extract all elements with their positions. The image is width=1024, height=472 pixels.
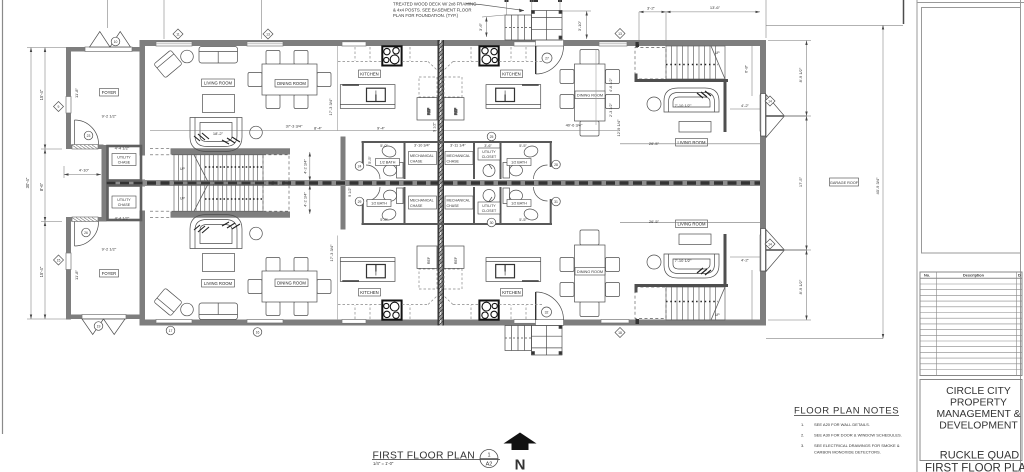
- svg-text:15'-4": 15'-4": [39, 266, 44, 277]
- svg-text:16: 16: [256, 331, 260, 335]
- svg-text:24: 24: [358, 165, 362, 169]
- svg-text:N: N: [515, 457, 526, 472]
- svg-text:1/2 BATH: 1/2 BATH: [371, 202, 387, 206]
- svg-text:CARBON MONOXIDE DETECTORS.: CARBON MONOXIDE DETECTORS.: [814, 449, 881, 454]
- svg-text:LIVING ROOM: LIVING ROOM: [204, 81, 232, 86]
- svg-text:REF: REF: [427, 107, 431, 115]
- svg-text:CHASE: CHASE: [118, 161, 131, 165]
- svg-text:5'-0": 5'-0": [380, 144, 388, 148]
- svg-text:REF: REF: [454, 107, 458, 115]
- svg-text:5'-5": 5'-5": [368, 156, 372, 164]
- svg-text:CHASE: CHASE: [118, 203, 131, 207]
- svg-text:17: 17: [169, 329, 173, 333]
- svg-text:UP: UP: [715, 313, 720, 317]
- svg-text:6'-8": 6'-8": [744, 64, 749, 73]
- svg-text:5'-5": 5'-5": [519, 144, 527, 148]
- svg-text:MANAGEMENT &: MANAGEMENT &: [936, 409, 1020, 420]
- svg-text:18'-2": 18'-2": [213, 131, 224, 136]
- svg-text:4'-4 1/2": 4'-4 1/2": [115, 216, 130, 221]
- svg-text:9'-2 1/2": 9'-2 1/2": [102, 114, 117, 119]
- svg-text:MECHANICAL: MECHANICAL: [410, 154, 434, 158]
- svg-text:3'-10 3/4": 3'-10 3/4": [414, 143, 431, 147]
- svg-text:CLOSET: CLOSET: [482, 155, 497, 159]
- svg-text:17'-5": 17'-5": [798, 176, 803, 187]
- svg-text:RUCKLE QUAD: RUCKLE QUAD: [940, 449, 1020, 461]
- svg-text:5'-0": 5'-0": [380, 218, 388, 222]
- svg-text:14: 14: [768, 243, 772, 247]
- svg-text:KITCHEN: KITCHEN: [360, 72, 378, 77]
- svg-text:11'-8": 11'-8": [74, 269, 79, 279]
- svg-text:SEE A20 FOR WALL DETAILS.: SEE A20 FOR WALL DETAILS.: [814, 422, 870, 427]
- svg-text:PLAN FOR FOUNDATION. (TYP.): PLAN FOR FOUNDATION. (TYP.): [393, 13, 459, 18]
- svg-text:CHASE: CHASE: [447, 160, 460, 164]
- svg-text:FOYER: FOYER: [102, 90, 116, 95]
- svg-text:8'-9 1/2": 8'-9 1/2": [798, 279, 803, 294]
- svg-text:FIRST FLOOR PLAN: FIRST FLOOR PLAN: [925, 463, 1024, 472]
- svg-text:7'-10 1/2": 7'-10 1/2": [675, 258, 692, 263]
- svg-text:PROPERTY: PROPERTY: [950, 398, 1007, 409]
- svg-text:26: 26: [84, 231, 88, 235]
- svg-text:30'-4": 30'-4": [25, 177, 30, 188]
- svg-text:MECHANICAL: MECHANICAL: [447, 199, 471, 203]
- svg-text:UP: UP: [180, 197, 186, 201]
- svg-text:32: 32: [545, 311, 549, 315]
- svg-text:CHASE: CHASE: [410, 204, 423, 208]
- svg-text:2'-3 1/2": 2'-3 1/2": [609, 102, 613, 117]
- svg-text:4'-2 1/4": 4'-2 1/4": [303, 159, 308, 174]
- svg-text:25: 25: [490, 135, 494, 139]
- svg-text:4'-6 1/2": 4'-6 1/2": [609, 77, 613, 92]
- svg-text:UTILITY: UTILITY: [482, 150, 496, 154]
- svg-text:40'-6 3/4": 40'-6 3/4": [566, 123, 583, 128]
- svg-text:8'-9 1/2": 8'-9 1/2": [798, 67, 803, 82]
- svg-text:7'-10 1/2": 7'-10 1/2": [675, 103, 692, 108]
- svg-text:23: 23: [87, 134, 91, 138]
- svg-text:UTILITY: UTILITY: [117, 156, 131, 160]
- svg-text:DEVELOPMENT: DEVELOPMENT: [939, 421, 1018, 432]
- svg-text:KITCHEN: KITCHEN: [360, 290, 378, 295]
- svg-text:13: 13: [618, 32, 622, 36]
- svg-text:& 4x4 POSTS. SEE BASEMENT FLOO: & 4x4 POSTS. SEE BASEMENT FLOOR: [393, 7, 471, 12]
- svg-text:Description: Description: [963, 274, 985, 278]
- svg-text:CHASE: CHASE: [410, 160, 423, 164]
- svg-text:11: 11: [176, 33, 180, 37]
- svg-text:KITCHEN: KITCHEN: [502, 72, 520, 77]
- svg-text:4'-4 1/2": 4'-4 1/2": [115, 146, 130, 151]
- svg-text:9 1/2": 9 1/2": [348, 186, 352, 196]
- svg-text:9'-4": 9'-4": [377, 126, 386, 131]
- svg-text:13'-6": 13'-6": [710, 5, 721, 10]
- svg-text:GARAGE ROOF: GARAGE ROOF: [830, 181, 859, 185]
- svg-text:37'-3 3/4": 37'-3 3/4": [286, 124, 303, 129]
- svg-text:12'-9 1/4": 12'-9 1/4": [616, 119, 621, 136]
- svg-text:3'-10": 3'-10": [577, 20, 582, 31]
- svg-text:1.: 1.: [801, 422, 804, 427]
- svg-text:No.: No.: [924, 274, 930, 278]
- svg-text:SEE ELECTRICAL DRAWINGS FOR SM: SEE ELECTRICAL DRAWINGS FOR SMOKE &: [814, 443, 900, 448]
- svg-text:4'-10": 4'-10": [79, 168, 90, 173]
- svg-text:1: 1: [487, 453, 490, 459]
- svg-text:UTILITY: UTILITY: [482, 204, 496, 208]
- svg-text:4'-2 1/4": 4'-2 1/4": [303, 192, 308, 207]
- svg-text:TREATED WOOD DECK W/ 2x8 FRAMI: TREATED WOOD DECK W/ 2x8 FRAMING: [393, 2, 477, 7]
- svg-text:30: 30: [490, 221, 494, 225]
- svg-text:14: 14: [768, 100, 772, 104]
- svg-text:LIVING ROOM: LIVING ROOM: [204, 281, 232, 286]
- svg-text:13: 13: [266, 33, 270, 37]
- svg-text:DINING ROOM: DINING ROOM: [577, 94, 603, 98]
- svg-text:15'-4": 15'-4": [39, 89, 44, 100]
- svg-text:3'-6": 3'-6": [484, 144, 492, 148]
- svg-text:CHASE: CHASE: [447, 204, 460, 208]
- svg-text:3'-11 1/4": 3'-11 1/4": [450, 143, 466, 147]
- svg-text:10: 10: [114, 40, 118, 44]
- svg-text:LIVING ROOM: LIVING ROOM: [678, 140, 706, 145]
- svg-text:SEE A30 FOR DOOR & WINDOW SCHE: SEE A30 FOR DOOR & WINDOW SCHEDULES.: [814, 433, 902, 438]
- svg-text:1/2 BATH: 1/2 BATH: [511, 202, 527, 206]
- svg-text:11'-8": 11'-8": [74, 87, 79, 97]
- svg-text:17'-3 3/4": 17'-3 3/4": [329, 244, 334, 261]
- svg-text:31: 31: [554, 200, 558, 204]
- svg-text:2.: 2.: [801, 433, 804, 438]
- svg-text:CIRCLE CITY: CIRCLE CITY: [946, 386, 1011, 397]
- svg-text:5'-5": 5'-5": [519, 218, 527, 222]
- svg-text:1/4" = 1'-0": 1/4" = 1'-0": [373, 461, 394, 466]
- svg-text:1/2 BATH: 1/2 BATH: [511, 161, 527, 165]
- svg-text:CLOSET: CLOSET: [482, 209, 497, 213]
- svg-text:D: D: [1018, 274, 1021, 278]
- svg-text:8'-4": 8'-4": [314, 125, 323, 130]
- svg-text:3.: 3.: [801, 443, 804, 448]
- svg-text:DINING ROOM: DINING ROOM: [277, 281, 306, 286]
- svg-text:29: 29: [358, 200, 362, 204]
- svg-text:KITCHEN: KITCHEN: [502, 290, 520, 295]
- svg-text:18: 18: [618, 331, 622, 335]
- svg-text:15: 15: [57, 259, 61, 263]
- svg-text:1/2 BATH: 1/2 BATH: [380, 161, 396, 165]
- svg-text:FLOOR PLAN NOTES: FLOOR PLAN NOTES: [794, 406, 899, 417]
- svg-text:DINING ROOM: DINING ROOM: [277, 81, 306, 86]
- svg-text:FOYER: FOYER: [102, 271, 116, 276]
- svg-text:8'-6": 8'-6": [39, 182, 44, 191]
- svg-text:26'-5": 26'-5": [649, 219, 660, 224]
- svg-text:UTILITY: UTILITY: [117, 198, 131, 202]
- svg-text:4'-2": 4'-2": [741, 103, 750, 108]
- svg-text:MECHANICAL: MECHANICAL: [410, 199, 434, 203]
- svg-text:27: 27: [545, 57, 549, 61]
- svg-text:9: 9: [58, 105, 60, 109]
- svg-text:28: 28: [554, 163, 558, 167]
- svg-text:4'-2": 4'-2": [741, 258, 750, 263]
- svg-text:26'-5": 26'-5": [649, 141, 660, 146]
- svg-text:9'-2 1/2": 9'-2 1/2": [102, 247, 117, 252]
- svg-text:UP: UP: [715, 51, 720, 55]
- svg-text:19: 19: [97, 325, 101, 329]
- svg-text:3'-2": 3'-2": [647, 6, 656, 11]
- svg-text:3'-6": 3'-6": [478, 22, 483, 31]
- svg-text:UP: UP: [180, 167, 186, 171]
- svg-text:A2: A2: [486, 462, 493, 468]
- svg-text:REF: REF: [427, 256, 431, 264]
- svg-text:MECHANICAL: MECHANICAL: [447, 154, 471, 158]
- svg-text:40'-9 3/4": 40'-9 3/4": [875, 177, 880, 194]
- svg-text:REF: REF: [454, 256, 458, 264]
- svg-text:9 1/2": 9 1/2": [433, 121, 437, 131]
- svg-text:17'-3 3/4": 17'-3 3/4": [328, 98, 333, 115]
- svg-text:DINING ROOM: DINING ROOM: [577, 270, 603, 274]
